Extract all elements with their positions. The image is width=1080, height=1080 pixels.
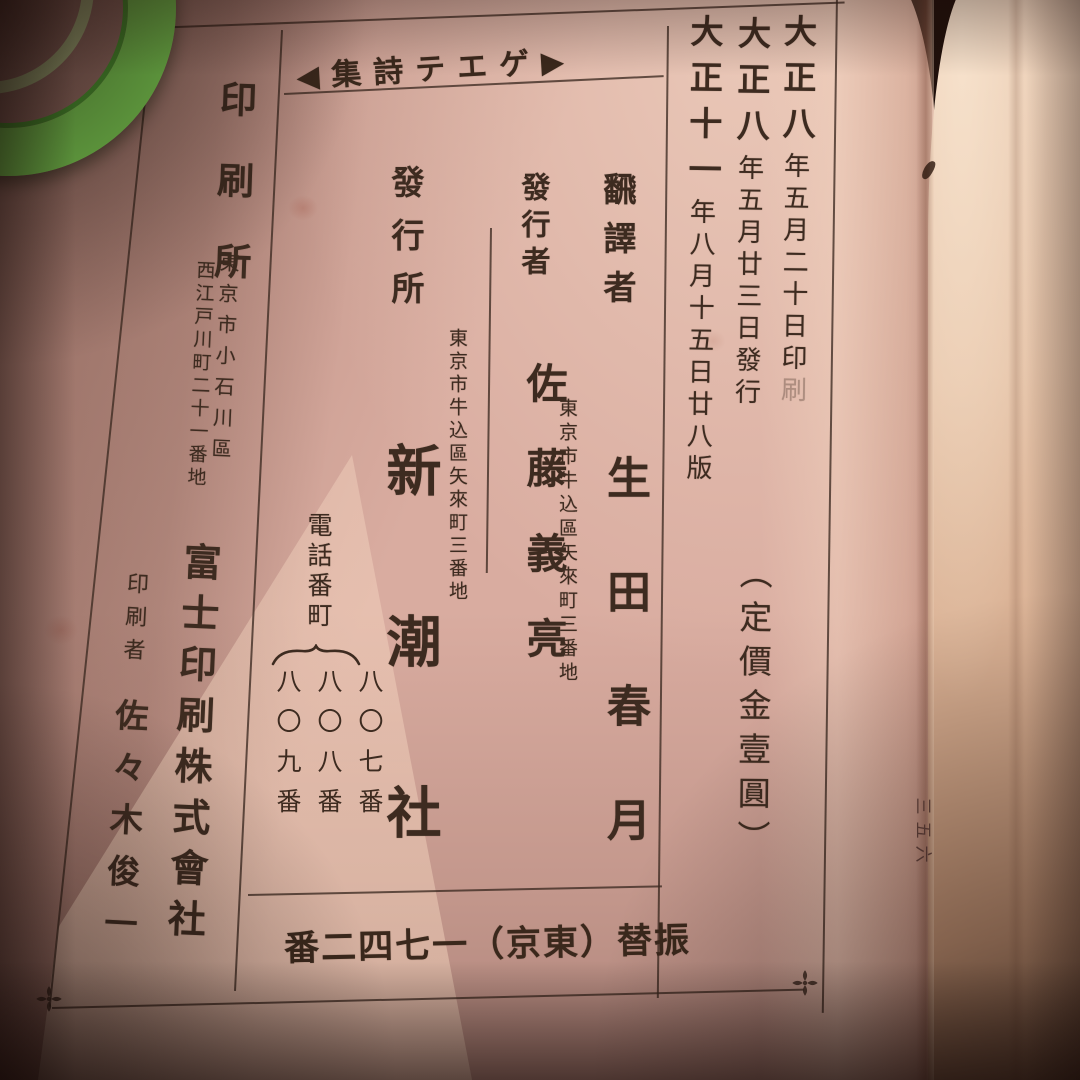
price: ︵定價金壹圓︶ <box>726 556 777 864</box>
edge-page-number: 三五六 <box>913 798 938 888</box>
phone-number: 八〇八番 <box>309 668 345 828</box>
publisher-person-label: 發行者 <box>512 172 554 283</box>
publisher-person-name: 佐藤義亮 <box>513 362 573 702</box>
paper-stain <box>44 615 78 645</box>
corner-ornament-icon <box>790 968 820 998</box>
publisher-house-label: 發行所 <box>380 165 428 324</box>
phone-label: 電話番町 <box>299 512 335 632</box>
next-page-edge <box>928 0 1080 1080</box>
printer-person-label: 印刷者 <box>115 571 152 672</box>
date-line-issued: 大正八年五月廿三日發行 <box>721 16 774 411</box>
paper-stain <box>288 195 318 221</box>
phone-numbers: 八〇七番 八〇八番 八〇九番 <box>268 668 386 828</box>
date-era: 大正八 <box>731 16 769 154</box>
postal-transfer-line: 番二四七一（京東）替振 <box>284 912 692 972</box>
phone-brace-icon <box>270 644 362 666</box>
date-era: 大正八 <box>777 14 815 152</box>
page-crease <box>1008 0 1024 1080</box>
photo-of-book-colophon: ◀集詩テエゲ▶ 大正八年五月二十日印刷 大正八年五月廿三日發行 大正十一年八月十… <box>0 0 1080 1080</box>
translator-name: 生田春月 <box>592 455 656 911</box>
date-era: 大正十一 <box>683 14 722 198</box>
phone-number: 八〇九番 <box>268 668 304 828</box>
date-line-printed: 大正八年五月二十日印刷 <box>767 14 820 409</box>
translator-label: 飜譯者 <box>592 172 640 319</box>
phone-number: 八〇七番 <box>350 668 386 828</box>
corner-ornament-icon <box>34 984 64 1014</box>
date-line-edition: 大正十一年八月十五日廿八版 <box>673 14 728 487</box>
